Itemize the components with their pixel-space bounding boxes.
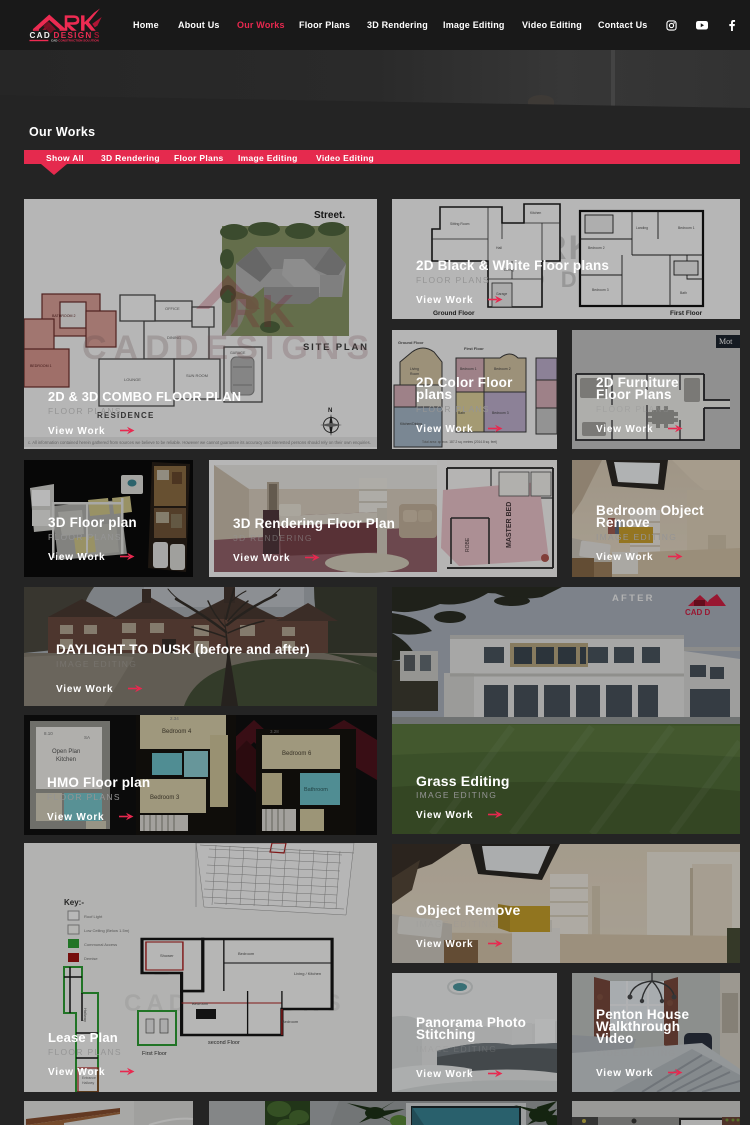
svg-text:CAD CONSTRUCTION SOLUTION: CAD CONSTRUCTION SOLUTION xyxy=(51,39,99,43)
svg-text:CAD: CAD xyxy=(29,31,51,40)
